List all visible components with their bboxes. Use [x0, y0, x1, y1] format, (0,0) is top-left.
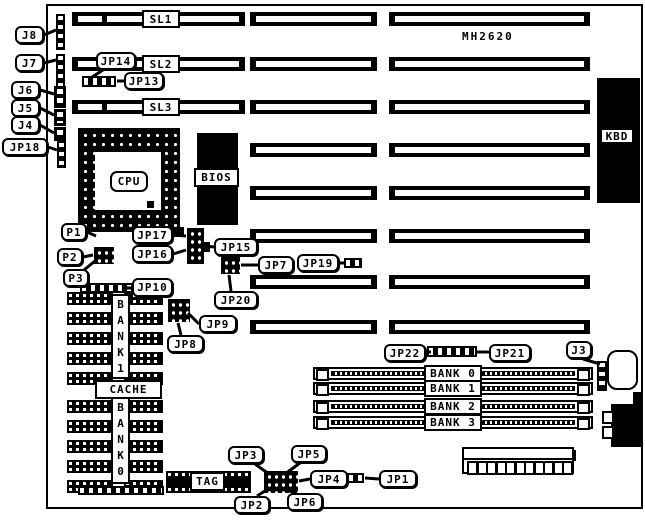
jp19-jumper	[344, 258, 362, 268]
callout-jp16: JP16	[132, 245, 173, 263]
slot-bar-segment	[389, 275, 590, 289]
callout-j3: J3	[566, 341, 592, 359]
bios-label: BIOS	[194, 168, 239, 187]
callout-jp17: JP17	[132, 226, 173, 244]
slot-bar-segment	[389, 100, 590, 114]
slot-bar-segment	[389, 229, 590, 243]
bank0-label: BANK0	[111, 396, 130, 484]
callout-j8: J8	[15, 26, 44, 44]
slot-stripe	[395, 104, 584, 110]
slot-stripe	[256, 16, 371, 22]
power-connector-tab	[633, 392, 643, 406]
j6-connector	[54, 86, 66, 108]
callout-jp9: JP9	[199, 315, 237, 333]
bottom-connector-divider	[462, 458, 574, 460]
slot-bar-segment	[250, 320, 377, 334]
callout-j7: J7	[15, 54, 44, 72]
slot-stripe	[256, 61, 371, 67]
callout-jp21: JP21	[489, 344, 531, 362]
slot-bar-segment	[250, 229, 377, 243]
bank1-label: BANK1	[111, 294, 130, 379]
slot-bar-segment	[250, 275, 377, 289]
callout-p3: P3	[63, 269, 89, 287]
callout-jp20: JP20	[214, 291, 258, 309]
dip-chip	[67, 292, 113, 305]
slot-bar-segment	[389, 320, 590, 334]
slot-bar-segment	[389, 57, 590, 71]
callout-jp19: JP19	[297, 254, 339, 272]
slot-stripe	[395, 147, 584, 153]
slot-stripe	[256, 279, 371, 285]
simm-clip-left	[316, 418, 329, 430]
callout-jp4: JP4	[310, 470, 348, 488]
simm-clip-right	[577, 384, 590, 396]
slot-bar-segment	[250, 100, 377, 114]
jp7-jumper-block	[221, 257, 240, 274]
j8-connector	[56, 14, 65, 50]
power-pad-2	[602, 426, 614, 439]
tag-label: TAG	[190, 472, 225, 491]
slot-bar-segment	[250, 143, 377, 157]
slot-bar-segment	[250, 57, 377, 71]
jp13-jumper	[82, 76, 116, 87]
simm-bank-label: BANK 1	[424, 380, 482, 397]
slot-bar-segment	[389, 143, 590, 157]
pin-strip-bottom	[78, 486, 164, 495]
jp15-pad	[204, 242, 210, 252]
dip-chip	[67, 332, 113, 345]
jp18-connector	[57, 141, 66, 168]
power-pad-1	[602, 411, 614, 424]
cpu-pin1-dot	[147, 201, 154, 208]
dip-chip	[67, 440, 113, 453]
jp1-jumper	[347, 473, 364, 483]
dip-chip	[67, 420, 113, 433]
slot-bar-segment	[389, 186, 590, 200]
din-connector-outline	[607, 350, 638, 390]
simm-clip-right	[577, 418, 590, 430]
slot-bar-segment	[250, 12, 377, 26]
dip-chip	[67, 400, 113, 413]
callout-jp18: JP18	[2, 138, 48, 156]
j4-connector	[54, 127, 66, 141]
slot-stripe	[395, 233, 584, 239]
simm-clip-right	[577, 402, 590, 414]
cpu-label: CPU	[110, 171, 148, 192]
simm-clip-left	[316, 384, 329, 396]
callout-jp6: JP6	[287, 493, 323, 511]
dip-chip	[67, 352, 113, 365]
slot-label: SL3	[142, 98, 180, 116]
slot-key-notch	[102, 103, 107, 111]
keyboard-label: KBD	[600, 128, 634, 144]
slot-stripe	[395, 190, 584, 196]
callout-jp2: JP2	[234, 496, 270, 514]
simm-clip-left	[316, 402, 329, 414]
slot-key-notch	[102, 15, 107, 23]
slot-stripe	[256, 233, 371, 239]
simm-clip-right	[577, 369, 590, 381]
callout-jp1: JP1	[379, 470, 417, 488]
board-model-text: MH2620	[462, 30, 514, 43]
jp17-jumper-block	[187, 228, 204, 264]
callout-jp14: JP14	[96, 52, 136, 70]
j7-connector	[56, 54, 65, 90]
simm-clip-left	[316, 369, 329, 381]
slot-stripe	[256, 190, 371, 196]
slot-label: SL1	[142, 10, 180, 28]
callout-p2: P2	[57, 248, 83, 266]
slot-stripe	[395, 324, 584, 330]
callout-jp3: JP3	[228, 446, 264, 464]
motherboard-diagram: MH2620 KBD CPU BIOS BANK1 BANK0 CACHE TA…	[0, 0, 645, 520]
dip-chip	[67, 460, 113, 473]
callout-p1: P1	[61, 223, 87, 241]
callout-jp10: JP10	[132, 278, 173, 297]
p2-jumper-block	[94, 247, 114, 264]
jp17-pad	[173, 227, 184, 237]
slot-stripe	[395, 16, 584, 22]
callout-j4: J4	[11, 116, 40, 134]
jp-cluster-block	[264, 471, 298, 493]
jp21-jumper	[427, 346, 477, 357]
cache-label: CACHE	[95, 380, 162, 399]
connector-pad	[562, 461, 573, 475]
slot-stripe	[256, 147, 371, 153]
callout-jp5: JP5	[291, 445, 327, 463]
callout-jp8: JP8	[167, 335, 204, 353]
slot-bar-segment	[250, 186, 377, 200]
simm-bank-label: BANK 2	[424, 398, 482, 415]
callout-j5: J5	[11, 99, 40, 117]
power-connector	[611, 404, 641, 447]
slot-bar-segment	[389, 12, 590, 26]
slot-stripe	[256, 324, 371, 330]
slot-stripe	[256, 104, 371, 110]
j3-connector	[597, 361, 607, 391]
slot-stripe	[395, 279, 584, 285]
callout-jp7: JP7	[258, 256, 294, 274]
callout-jp13: JP13	[124, 72, 164, 90]
simm-bank-label: BANK 3	[424, 414, 482, 431]
callout-jp15: JP15	[214, 238, 258, 256]
callout-jp22: JP22	[384, 344, 426, 362]
jp8-jumper-block	[168, 299, 190, 322]
jp10-header	[80, 283, 133, 293]
slot-stripe	[395, 61, 584, 67]
j5-connector	[54, 109, 66, 126]
callout-j6: J6	[11, 81, 40, 99]
slot-label: SL2	[142, 55, 180, 73]
dip-chip	[67, 312, 113, 325]
